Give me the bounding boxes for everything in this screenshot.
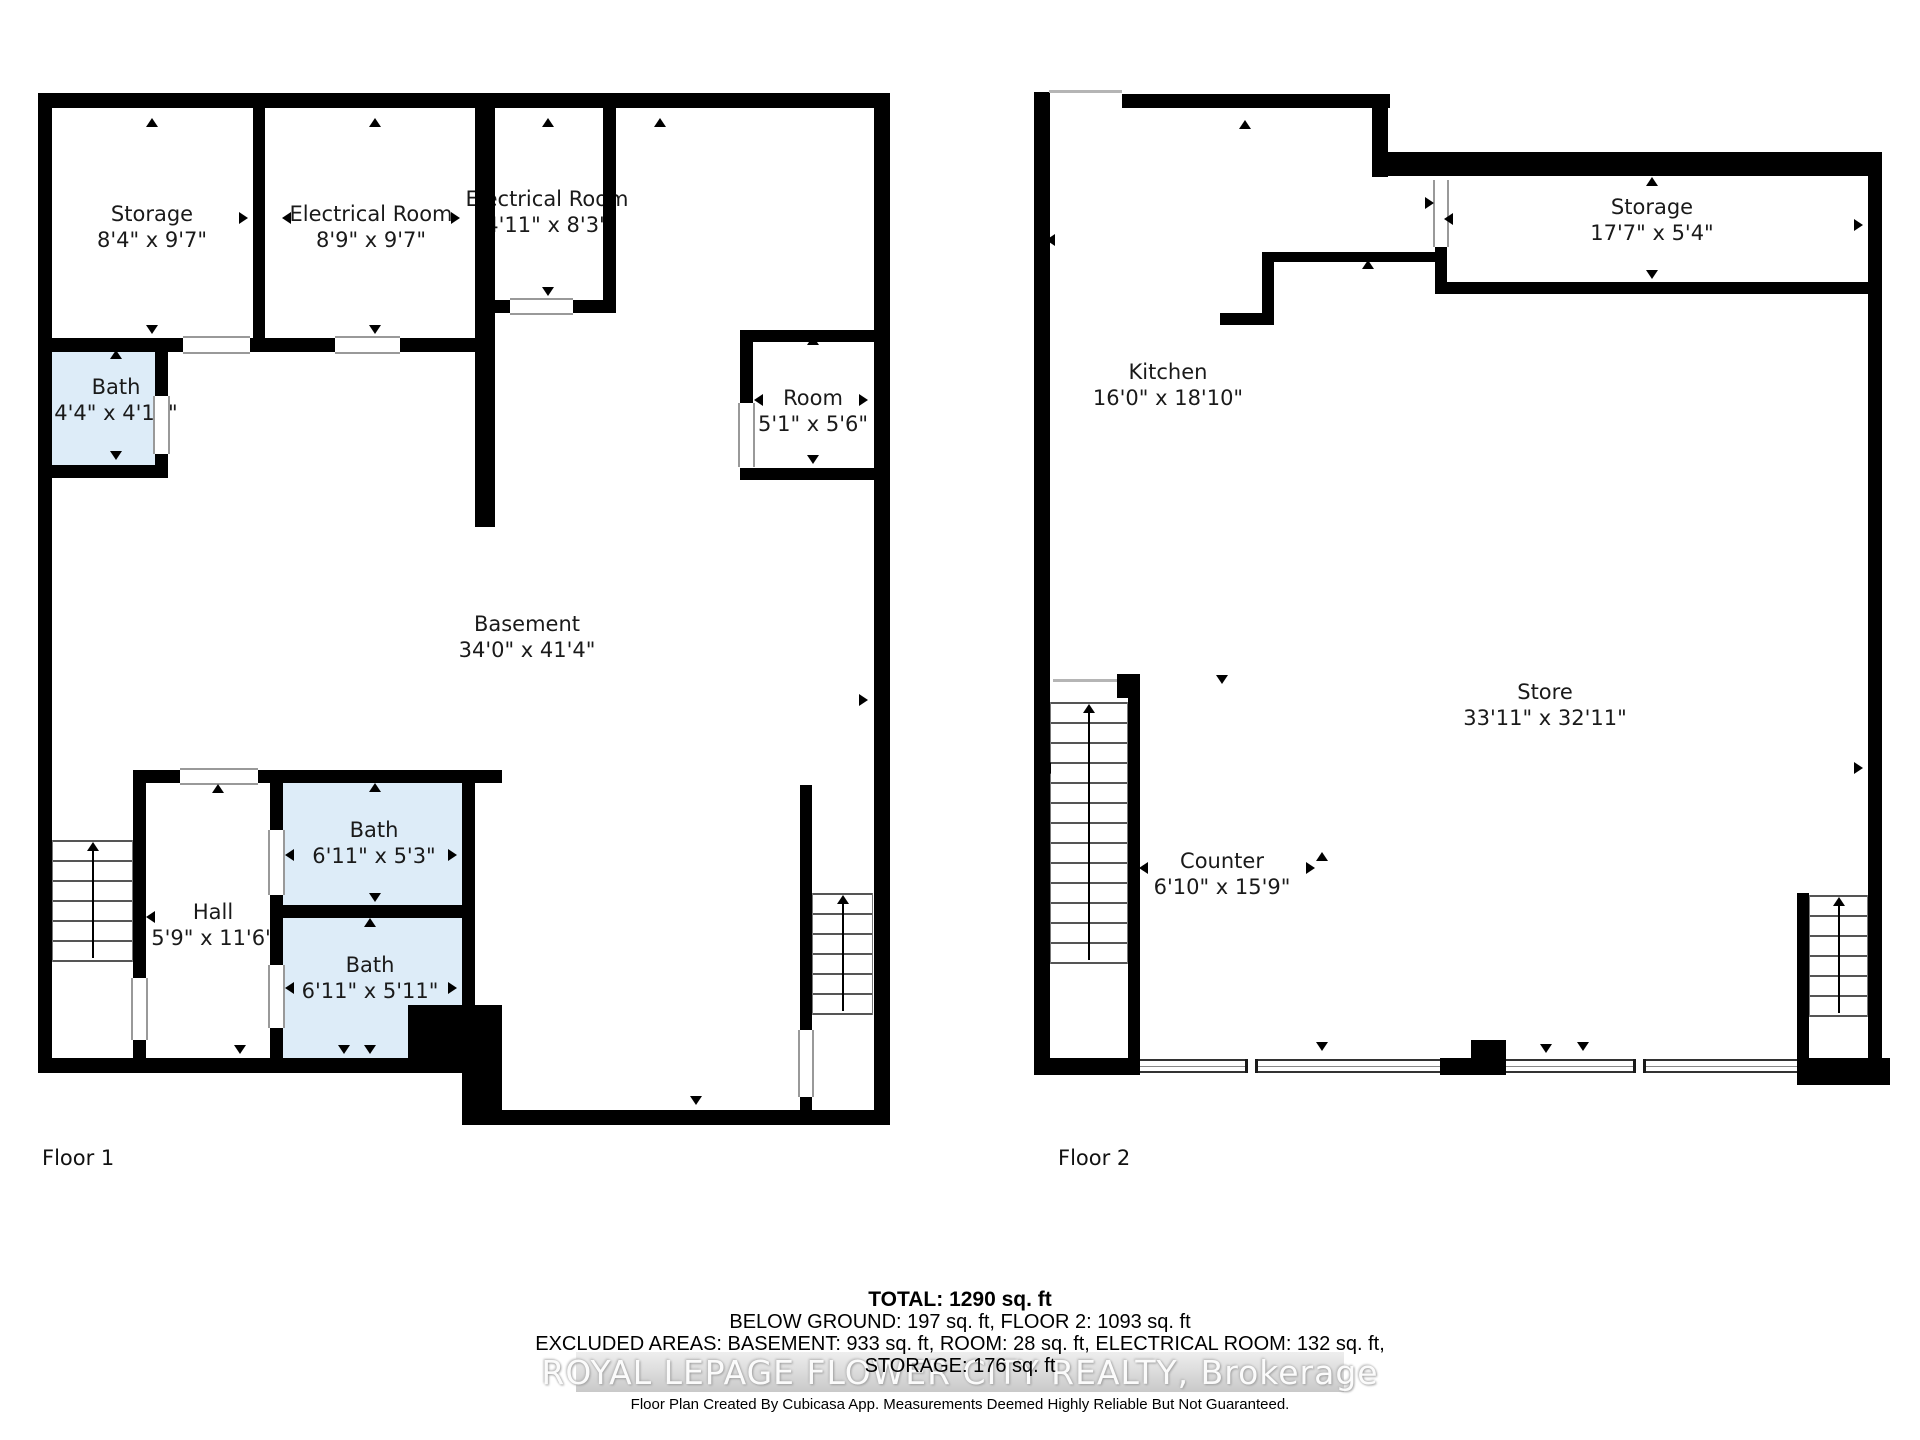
- door-opening: [153, 396, 170, 454]
- floor1-label: Floor 1: [42, 1146, 114, 1170]
- measure-arrow-icon: [859, 394, 868, 406]
- door-opening: [738, 403, 755, 467]
- measure-arrow-icon: [146, 911, 155, 923]
- wall: [1797, 893, 1809, 1063]
- measure-arrow-icon: [1239, 120, 1251, 129]
- wall: [475, 108, 495, 527]
- room-dimensions: 8'4" x 9'7": [97, 227, 207, 253]
- measure-arrow-icon: [1854, 762, 1863, 774]
- window-mullion: [1633, 1059, 1646, 1073]
- room-dimensions: 16'0" x 18'10": [1093, 385, 1243, 411]
- wall: [462, 770, 475, 1005]
- wall: [38, 93, 52, 1073]
- stair-up-arrow-icon: [1833, 897, 1845, 906]
- wall: [38, 338, 475, 352]
- measure-arrow-icon: [1046, 234, 1055, 246]
- room-dimensions: 5'1" x 5'6": [758, 411, 868, 437]
- measure-arrow-icon: [1540, 1044, 1552, 1053]
- measure-arrow-icon: [41, 209, 50, 221]
- measure-arrow-icon: [859, 694, 868, 706]
- wall: [133, 770, 146, 978]
- wall: [800, 1097, 812, 1110]
- measure-arrow-icon: [285, 849, 294, 861]
- wall: [1122, 94, 1390, 108]
- footer-disclaimer: Floor Plan Created By Cubicasa App. Meas…: [0, 1396, 1920, 1413]
- room-name: Bath: [312, 817, 435, 843]
- stair-tread: [813, 1013, 872, 1015]
- measure-arrow-icon: [448, 849, 457, 861]
- wall: [1435, 282, 1882, 294]
- measure-arrow-icon: [807, 336, 819, 345]
- room-dimensions: 6'11" x 5'11": [302, 978, 439, 1004]
- floor-plan-canvas: Storage8'4" x 9'7"Electrical Room8'9" x …: [0, 0, 1920, 1440]
- measure-arrow-icon: [754, 394, 763, 406]
- wall: [38, 465, 168, 478]
- wall: [283, 905, 475, 918]
- wall: [1372, 152, 1882, 176]
- room-name: Kitchen: [1093, 359, 1243, 385]
- measure-arrow-icon: [41, 397, 50, 409]
- measure-arrow-icon: [1316, 1042, 1328, 1051]
- room-label-storage-f2: Storage17'7" x 5'4": [1590, 194, 1713, 246]
- room-name: Bath: [302, 952, 439, 978]
- wall: [874, 93, 890, 1125]
- room-label-store-f2: Store33'11" x 32'11": [1463, 679, 1627, 731]
- wall: [800, 785, 812, 1030]
- wall: [38, 1058, 502, 1073]
- footer-floor-areas: BELOW GROUND: 197 sq. ft, FLOOR 2: 1093 …: [0, 1311, 1920, 1334]
- measure-arrow-icon: [1577, 1042, 1589, 1051]
- measure-arrow-icon: [234, 1045, 246, 1054]
- room-label-storage-f1: Storage8'4" x 9'7": [97, 201, 207, 253]
- room-name: Basement: [459, 611, 596, 637]
- room-name: Room: [758, 385, 868, 411]
- measure-arrow-icon: [1425, 197, 1434, 209]
- wall: [1797, 1058, 1890, 1085]
- measure-arrow-icon: [1362, 260, 1374, 269]
- measure-arrow-icon: [369, 893, 381, 902]
- wall: [155, 348, 168, 398]
- room-dimensions: 17'7" x 5'4": [1590, 220, 1713, 246]
- room-name: Counter: [1154, 848, 1291, 874]
- stair-direction-line: [1088, 712, 1090, 960]
- measure-arrow-icon: [41, 694, 50, 706]
- room-name: Storage: [97, 201, 207, 227]
- window-glass-line: [1506, 1066, 1797, 1067]
- door-opening: [335, 336, 400, 354]
- room-label-hall-f1: Hall5'9" x 11'6": [151, 899, 274, 951]
- room-dimensions: 33'11" x 32'11": [1463, 705, 1627, 731]
- wall: [1440, 1058, 1506, 1075]
- door-opening: [268, 965, 285, 1028]
- measure-arrow-icon: [364, 918, 376, 927]
- door-opening: [798, 1030, 814, 1097]
- measure-arrow-icon: [690, 1096, 702, 1105]
- measure-arrow-icon: [146, 325, 158, 334]
- room-label-kitchen-f2: Kitchen16'0" x 18'10": [1093, 359, 1243, 411]
- stair-tread: [1810, 1015, 1867, 1017]
- wall: [740, 330, 753, 405]
- measure-arrow-icon: [542, 287, 554, 296]
- stair-tread: [1051, 962, 1127, 964]
- room-label-bath-1-f1: Bath6'11" x 5'3": [312, 817, 435, 869]
- wall: [603, 108, 616, 313]
- measure-arrow-icon: [1316, 852, 1328, 861]
- room-label-room-f1: Room5'1" x 5'6": [758, 385, 868, 437]
- footer-total-area: TOTAL: 1290 sq. ft: [0, 1288, 1920, 1312]
- stair-direction-line: [92, 850, 94, 958]
- door-threshold-line: [1053, 679, 1117, 682]
- stair-tread: [53, 960, 132, 962]
- measure-arrow-icon: [369, 783, 381, 792]
- measure-arrow-icon: [338, 1045, 350, 1054]
- measure-arrow-icon: [146, 118, 158, 127]
- room-label-bath-2-f1: Bath6'11" x 5'11": [302, 952, 439, 1004]
- door-threshold-line: [1049, 90, 1122, 93]
- room-dimensions: 6'10" x 15'9": [1154, 874, 1291, 900]
- stair-direction-line: [1838, 905, 1840, 1013]
- window-glass-line: [1140, 1066, 1440, 1067]
- footer-excluded-storage: STORAGE: 176 sq. ft: [0, 1355, 1920, 1378]
- wall: [740, 468, 890, 480]
- measure-arrow-icon: [1042, 762, 1051, 774]
- measure-arrow-icon: [212, 784, 224, 793]
- measure-arrow-icon: [1854, 219, 1863, 231]
- room-dimensions: 5'9" x 11'6": [151, 925, 274, 951]
- room-dimensions: 8'9" x 9'7": [290, 227, 453, 253]
- wall: [253, 108, 265, 352]
- window-mullion: [1245, 1059, 1258, 1073]
- stair-direction-line: [842, 903, 844, 1011]
- measure-arrow-icon: [282, 212, 291, 224]
- wall: [1220, 313, 1274, 325]
- wall: [1262, 252, 1447, 262]
- wall: [38, 93, 888, 108]
- measure-arrow-icon: [1646, 177, 1658, 186]
- room-name: Electrical Room: [290, 201, 453, 227]
- room-name: Store: [1463, 679, 1627, 705]
- measure-arrow-icon: [369, 325, 381, 334]
- measure-arrow-icon: [1216, 675, 1228, 684]
- measure-arrow-icon: [448, 982, 457, 994]
- wall: [1034, 1058, 1140, 1075]
- door-opening: [268, 830, 285, 895]
- wall: [133, 1040, 146, 1058]
- room-dimensions: 6'11" x 5'3": [312, 843, 435, 869]
- room-label-electrical-room-f1: Electrical Room8'9" x 9'7": [290, 201, 453, 253]
- measure-arrow-icon: [364, 1045, 376, 1054]
- room-name: Storage: [1590, 194, 1713, 220]
- measure-arrow-icon: [110, 350, 122, 359]
- measure-arrow-icon: [1139, 862, 1148, 874]
- measure-arrow-icon: [369, 118, 381, 127]
- measure-arrow-icon: [1306, 862, 1315, 874]
- door-opening: [131, 978, 148, 1040]
- room-name: Hall: [151, 899, 274, 925]
- stair-up-arrow-icon: [837, 895, 849, 904]
- measure-arrow-icon: [654, 118, 666, 127]
- measure-arrow-icon: [110, 451, 122, 460]
- room-label-basement-f1: Basement34'0" x 41'4": [459, 611, 596, 663]
- wall: [1471, 1040, 1506, 1060]
- door-opening: [510, 298, 573, 315]
- footer-excluded-areas: EXCLUDED AREAS: BASEMENT: 933 sq. ft, RO…: [0, 1333, 1920, 1356]
- measure-arrow-icon: [1444, 213, 1453, 225]
- measure-arrow-icon: [285, 982, 294, 994]
- window: [1506, 1059, 1797, 1073]
- measure-arrow-icon: [1646, 270, 1658, 279]
- wall: [471, 1110, 890, 1125]
- floor2-label: Floor 2: [1058, 1146, 1130, 1170]
- measure-arrow-icon: [239, 212, 248, 224]
- measure-arrow-icon: [451, 212, 460, 224]
- stair-up-arrow-icon: [1083, 704, 1095, 713]
- room-label-counter-f2: Counter6'10" x 15'9": [1154, 848, 1291, 900]
- door-opening: [183, 336, 250, 354]
- room-dimensions: 34'0" x 41'4": [459, 637, 596, 663]
- wall: [408, 1005, 502, 1058]
- measure-arrow-icon: [807, 455, 819, 464]
- window: [1140, 1059, 1440, 1073]
- door-opening: [180, 768, 258, 785]
- measure-arrow-icon: [542, 118, 554, 127]
- stair-up-arrow-icon: [87, 842, 99, 851]
